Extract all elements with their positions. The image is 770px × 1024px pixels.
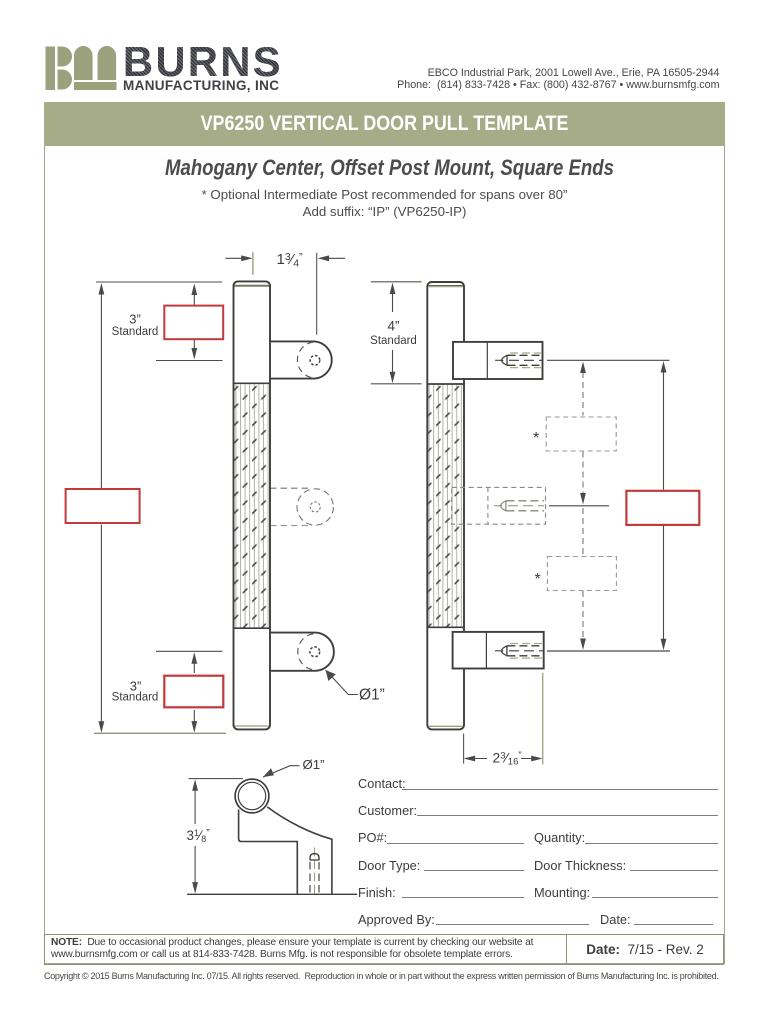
svg-text:Ø1”: Ø1”	[303, 757, 325, 772]
svg-text:Standard: Standard	[370, 335, 417, 347]
svg-text:Standard: Standard	[112, 326, 159, 338]
svg-text:*: *	[533, 430, 539, 447]
svg-text:Standard: Standard	[112, 692, 159, 704]
svg-text:*: *	[535, 571, 541, 588]
svg-text:4”: 4”	[387, 319, 399, 334]
svg-text:23⁄16”: 23⁄16”	[493, 751, 522, 768]
svg-text:3”: 3”	[129, 312, 141, 327]
svg-text:Ø1”: Ø1”	[359, 687, 385, 704]
svg-text:13⁄4”: 13⁄4”	[277, 251, 304, 270]
